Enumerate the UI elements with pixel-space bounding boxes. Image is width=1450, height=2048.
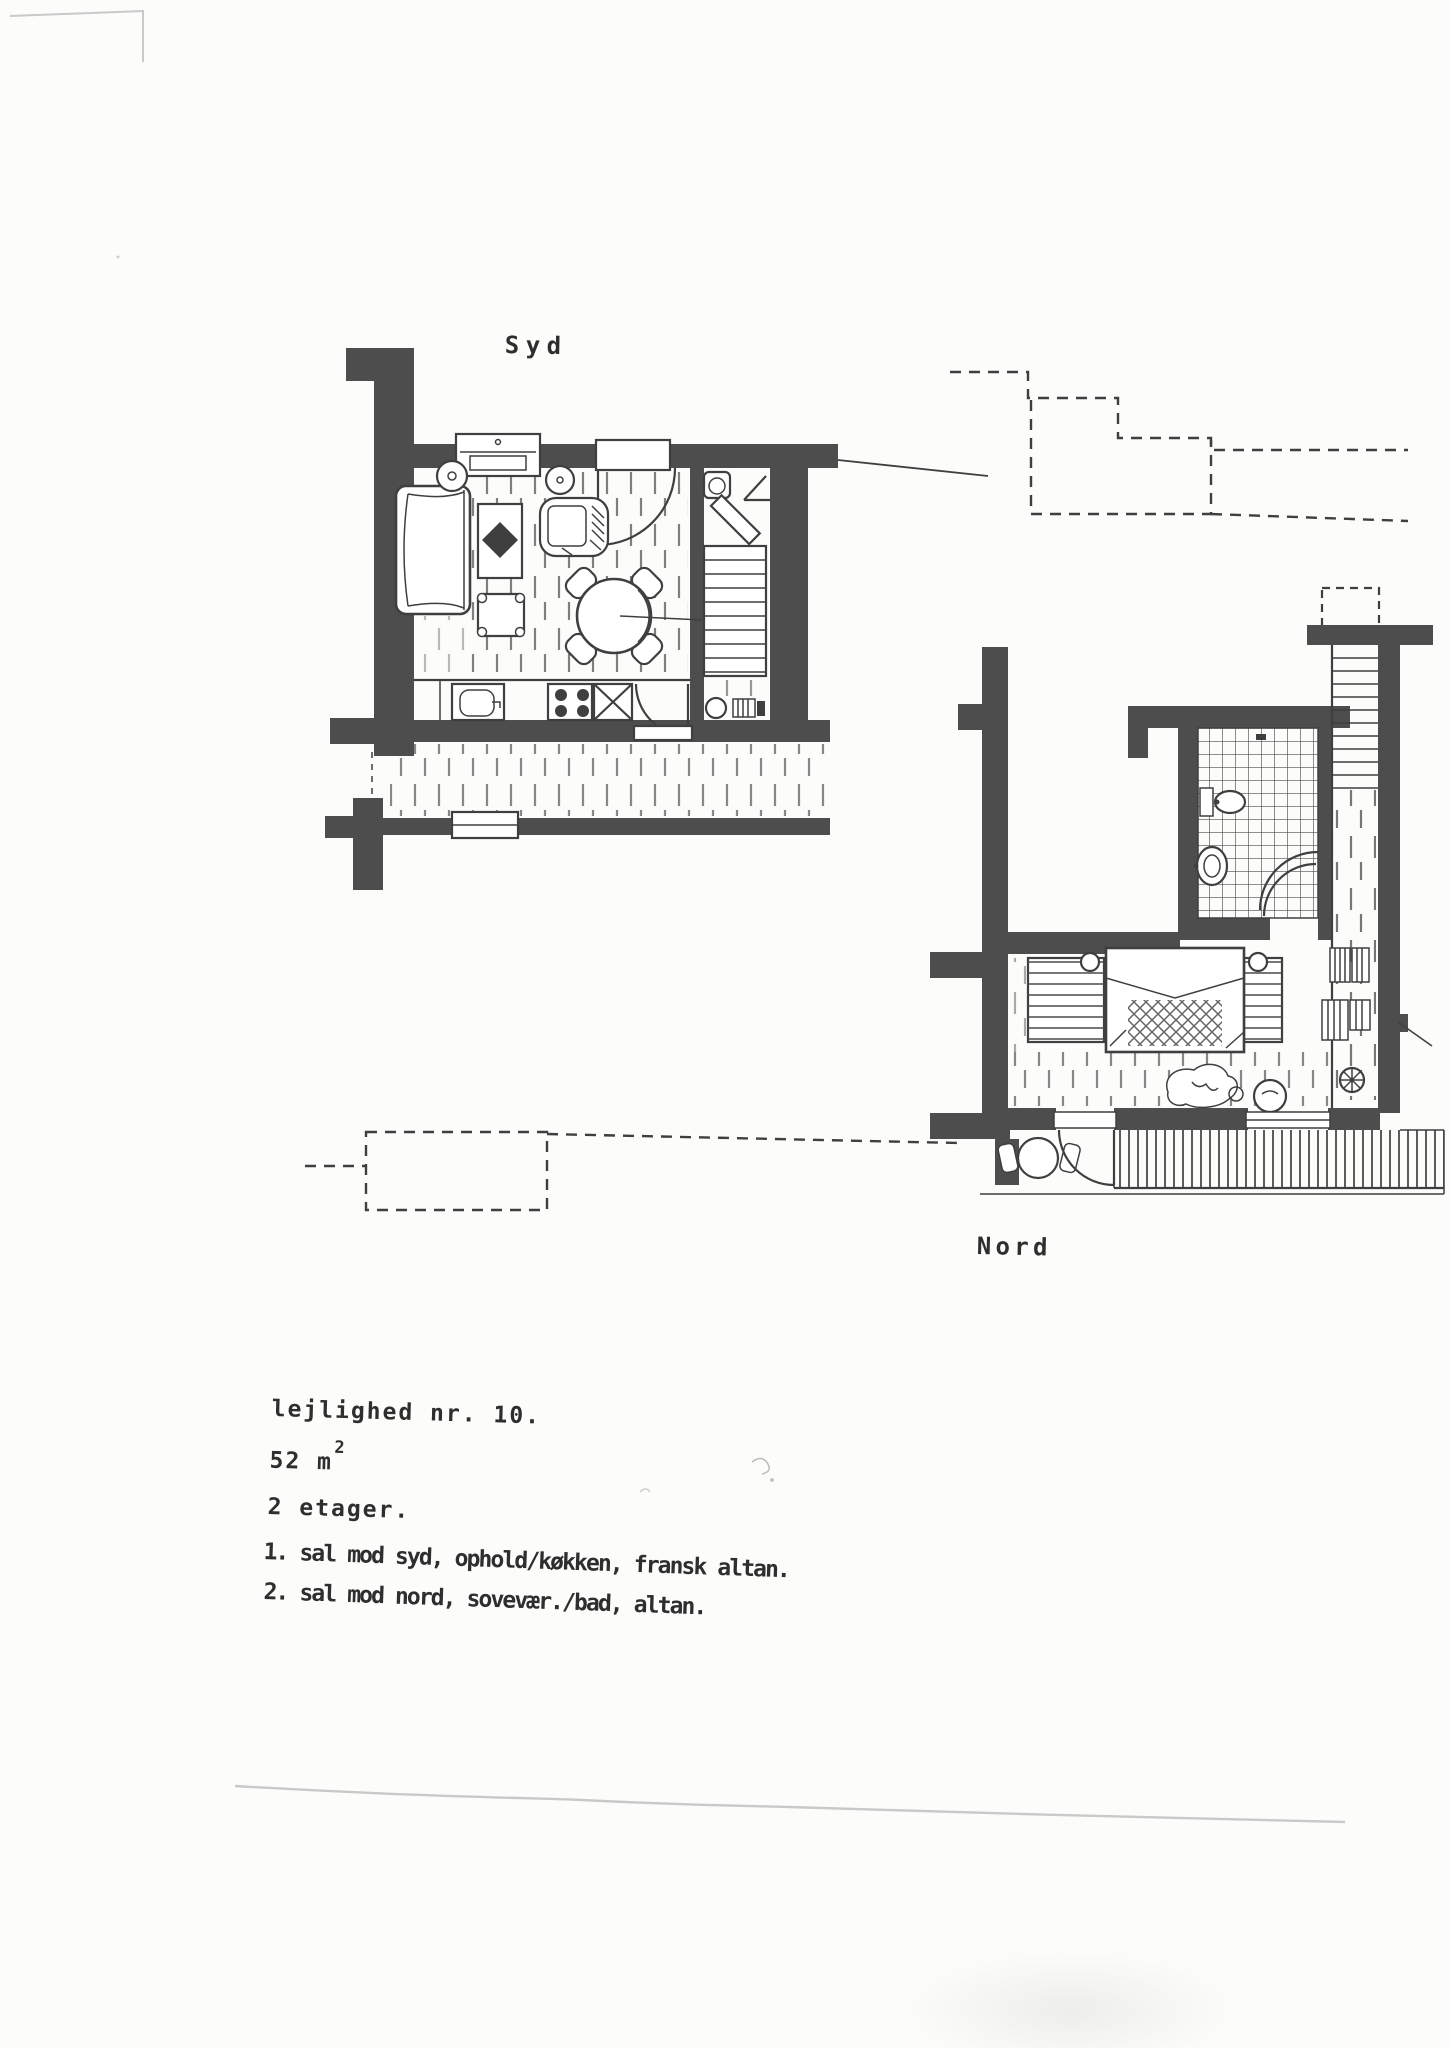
syd-stairs [704,495,766,676]
syd-sink-corner [706,698,765,718]
window-lower [452,812,518,838]
area-line: 52 m2 [269,1446,345,1475]
pencil-marks [640,1458,774,1492]
area-superscript: 2 [334,1438,347,1458]
pouf [1254,1080,1286,1112]
small-table [1018,1138,1058,1178]
kitchen-door [634,684,692,740]
syd-floor-plan [325,348,988,890]
scanned-floorplan-page: Syd Nord lejlighed nr. 10. 52 m2 2 etage… [0,0,1450,2048]
toilet-tank [1200,788,1213,816]
bath-sink [1197,847,1227,885]
scan-artifact-bottom-line [235,1786,1345,1822]
nord-label: Nord [976,1234,1051,1260]
floorplan-drawing [0,0,1450,2048]
area-value: 52 m [269,1448,333,1476]
bathroom [1194,728,1319,918]
coffee-table [478,504,522,578]
bedroom-door-arc [1059,1130,1114,1185]
wc-room [704,472,770,500]
window-top [456,434,540,476]
dashed-roof-outline [950,372,1408,521]
kitchen-counter [414,680,690,720]
syd-label: Syd [505,333,568,358]
scan-artifact-top-left [10,11,143,259]
leader-line [838,460,988,476]
dashed-skylight [1322,588,1379,627]
dashed-lower-outline [305,1132,958,1210]
nord-floor-plan [930,588,1444,1194]
floors-line: 2 etager. [267,1496,410,1523]
stool [478,594,525,637]
scan-shadow-artifact [900,1950,1240,2048]
